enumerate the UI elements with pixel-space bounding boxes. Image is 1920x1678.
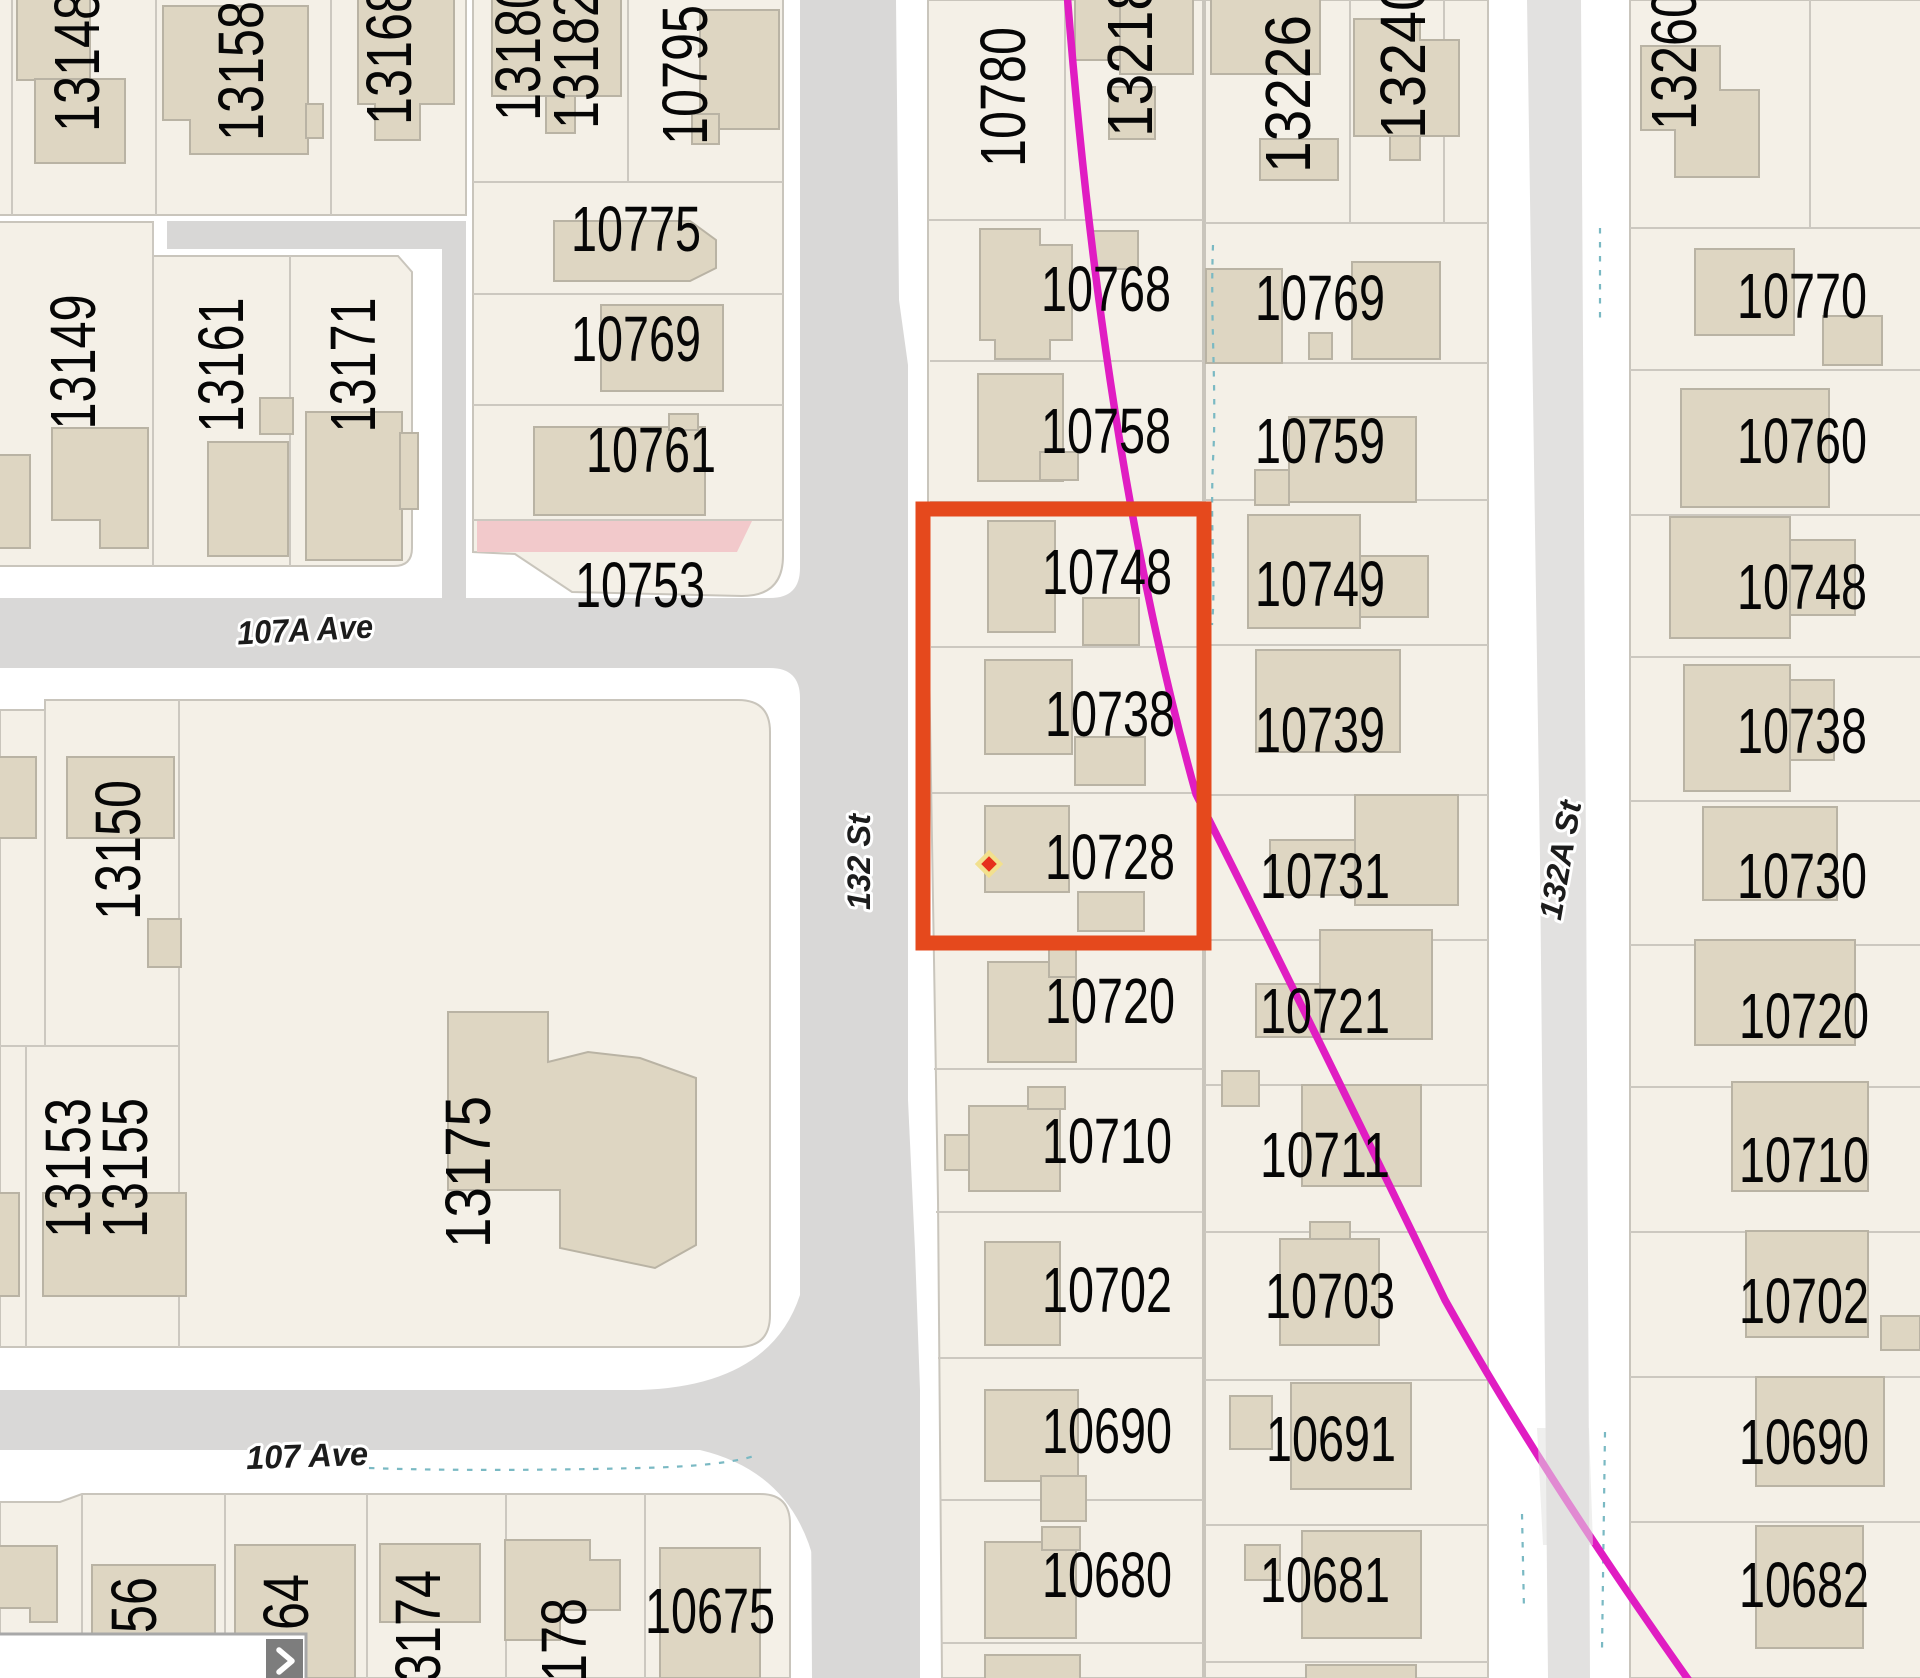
svg-text:10760: 10760 <box>1737 405 1867 477</box>
svg-text:13149: 13149 <box>37 295 109 430</box>
svg-text:10748: 10748 <box>1042 536 1172 608</box>
svg-text:13150: 13150 <box>82 780 154 920</box>
svg-text:56: 56 <box>98 1577 170 1633</box>
svg-text:10690: 10690 <box>1739 1406 1869 1478</box>
svg-text:10710: 10710 <box>1739 1124 1869 1196</box>
svg-text:10681: 10681 <box>1260 1544 1390 1616</box>
svg-text:10795: 10795 <box>649 5 721 145</box>
svg-text:13175: 13175 <box>432 1096 504 1248</box>
svg-text:13161: 13161 <box>185 298 257 433</box>
svg-text:10711: 10711 <box>1260 1119 1390 1191</box>
svg-text:10780: 10780 <box>967 27 1039 167</box>
svg-text:10758: 10758 <box>1041 395 1171 467</box>
svg-text:13260: 13260 <box>1638 0 1710 130</box>
svg-text:10675: 10675 <box>645 1575 775 1647</box>
svg-text:107A Ave: 107A Ave <box>236 607 374 651</box>
svg-text:10710: 10710 <box>1042 1105 1172 1177</box>
svg-text:10768: 10768 <box>1041 253 1171 325</box>
svg-text:10775: 10775 <box>571 193 701 265</box>
svg-text:10769: 10769 <box>571 303 701 375</box>
svg-text:13218: 13218 <box>1094 0 1166 137</box>
svg-text:10728: 10728 <box>1045 821 1175 893</box>
svg-text:13155: 13155 <box>89 1098 161 1238</box>
svg-text:10739: 10739 <box>1255 694 1385 766</box>
svg-text:13226: 13226 <box>1252 15 1324 173</box>
svg-text:10731: 10731 <box>1260 840 1390 912</box>
svg-text:13168: 13168 <box>353 0 425 125</box>
svg-text:10720: 10720 <box>1739 980 1869 1052</box>
svg-text:10770: 10770 <box>1737 260 1867 332</box>
svg-text:10702: 10702 <box>1042 1254 1172 1326</box>
svg-text:10720: 10720 <box>1045 965 1175 1037</box>
svg-text:10703: 10703 <box>1265 1260 1395 1332</box>
svg-text:10691: 10691 <box>1266 1403 1396 1475</box>
svg-text:13174: 13174 <box>382 1570 454 1678</box>
svg-text:10748: 10748 <box>1737 551 1867 623</box>
svg-text:10761: 10761 <box>586 414 716 486</box>
svg-text:13178: 13178 <box>528 1598 600 1678</box>
svg-text:13148: 13148 <box>41 0 113 132</box>
svg-text:13240: 13240 <box>1367 0 1439 139</box>
svg-text:10682: 10682 <box>1739 1549 1869 1621</box>
svg-text:10753: 10753 <box>575 549 705 621</box>
svg-text:10769: 10769 <box>1255 262 1385 334</box>
svg-text:10730: 10730 <box>1737 840 1867 912</box>
svg-text:10702: 10702 <box>1739 1265 1869 1337</box>
svg-text:10690: 10690 <box>1042 1395 1172 1467</box>
svg-text:132 St: 132 St <box>841 813 877 910</box>
svg-text:10738: 10738 <box>1737 695 1867 767</box>
svg-text:10721: 10721 <box>1260 975 1390 1047</box>
svg-text:10738: 10738 <box>1045 678 1175 750</box>
svg-text:64: 64 <box>250 1574 322 1630</box>
svg-text:10759: 10759 <box>1255 405 1385 477</box>
svg-text:10680: 10680 <box>1042 1539 1172 1611</box>
svg-text:13158: 13158 <box>205 1 277 141</box>
svg-text:10749: 10749 <box>1255 548 1385 620</box>
svg-text:107 Ave: 107 Ave <box>245 1435 368 1476</box>
svg-text:13182: 13182 <box>540 0 612 129</box>
svg-text:13171: 13171 <box>317 298 389 433</box>
